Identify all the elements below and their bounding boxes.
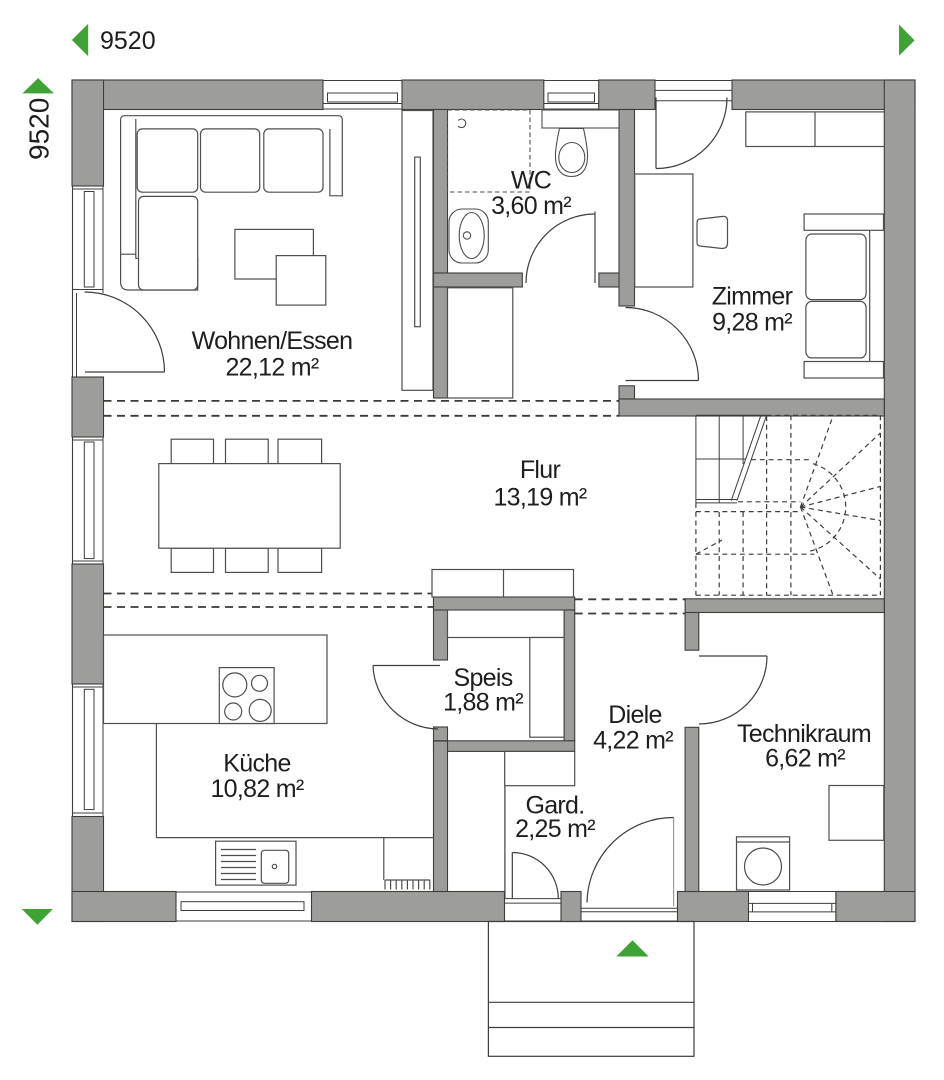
svg-text:Küche: Küche [223,750,290,778]
svg-text:WC: WC [511,167,552,195]
svg-text:13,19 m²: 13,19 m² [493,484,586,512]
svg-text:10,82 m²: 10,82 m² [210,775,303,803]
svg-text:2,25 m²: 2,25 m² [515,815,595,843]
svg-text:Zimmer: Zimmer [712,283,793,311]
svg-text:Flur: Flur [520,456,561,484]
svg-text:6,62 m²: 6,62 m² [765,745,845,773]
svg-text:9520: 9520 [100,27,156,55]
svg-text:1,88 m²: 1,88 m² [443,689,523,717]
svg-text:9520: 9520 [24,98,55,160]
svg-text:3,60 m²: 3,60 m² [491,192,571,220]
svg-text:Wohnen/Essen: Wohnen/Essen [192,327,353,355]
svg-text:4,22 m²: 4,22 m² [593,727,673,755]
svg-text:22,12 m²: 22,12 m² [225,354,318,382]
svg-text:Diele: Diele [608,701,661,729]
svg-text:9,28 m²: 9,28 m² [712,309,792,337]
